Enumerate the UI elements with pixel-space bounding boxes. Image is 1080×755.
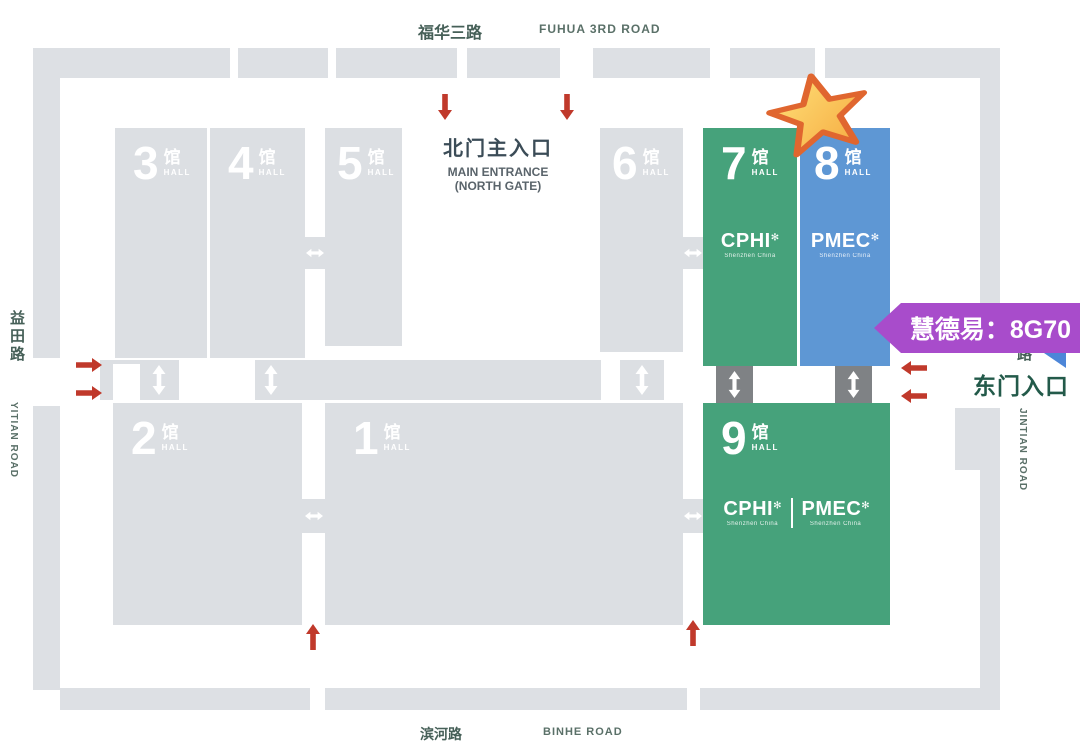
road-label-binhe-en: BINHE ROAD xyxy=(543,726,623,738)
double-arrow-horizontal-icon xyxy=(684,248,702,258)
hall-en-suffix: HALL xyxy=(164,168,191,177)
hall-number: 5 xyxy=(337,144,363,183)
passage-box-dark xyxy=(716,366,753,403)
hall-9-block: 9 馆HALL CPHI✻ Shenzhen China PMEC✻ Shenz… xyxy=(703,403,890,625)
hall-number: 3 xyxy=(133,144,159,183)
road-label-binhe-cn: 滨河路 xyxy=(420,724,462,744)
passage-box-dark xyxy=(835,366,872,403)
hall-5-block: 5 馆HALL xyxy=(325,128,402,346)
hall-number: 4 xyxy=(228,144,254,183)
logo-divider xyxy=(791,498,793,528)
hall-2-label: 2 馆HALL xyxy=(113,403,302,458)
entrance-arrow-left-icon xyxy=(901,361,927,375)
hall-3-label: 3 馆HALL xyxy=(115,128,207,183)
hall-cn-suffix: 馆 xyxy=(752,424,779,441)
double-arrow-vertical-icon xyxy=(728,371,741,398)
double-arrow-vertical-icon xyxy=(635,365,649,395)
corridor-gap xyxy=(179,360,255,400)
road-label-yitian-en: YITIAN ROAD xyxy=(8,402,19,478)
cphi-wordmark: CPHI xyxy=(721,230,771,252)
road-label-jintian-en: JINTIAN ROAD xyxy=(1017,408,1028,491)
outer-wall-segment xyxy=(700,688,1000,710)
double-arrow-horizontal-icon xyxy=(306,248,324,258)
entrance-arrow-down-icon xyxy=(560,94,574,120)
double-arrow-vertical-icon xyxy=(264,365,278,395)
outer-wall-segment xyxy=(33,48,230,78)
entrance-arrow-down-icon xyxy=(438,94,452,120)
outer-wall-segment xyxy=(33,406,60,690)
outer-wall-segment xyxy=(60,688,310,710)
hall-number: 2 xyxy=(131,419,157,458)
pmec-subtitle: Shenzhen China xyxy=(800,253,890,259)
entrance-arrow-up-icon xyxy=(686,620,700,646)
double-arrow-horizontal-icon xyxy=(684,511,702,521)
hall-cn-suffix: 馆 xyxy=(643,149,670,166)
hall-1-label: 1 馆HALL xyxy=(325,403,683,458)
hall-en-suffix: HALL xyxy=(384,443,411,452)
road-label-fuhua-en: FUHUA 3RD ROAD xyxy=(539,22,661,36)
hall-cn-suffix: 馆 xyxy=(162,424,189,441)
north-entrance-en-line2: (NORTH GATE) xyxy=(408,179,588,193)
starburst-icon: ✻ xyxy=(773,501,781,512)
hall-6-block: 6 馆HALL xyxy=(600,128,683,352)
hall-3-block: 3 馆HALL xyxy=(115,128,207,358)
pmec-subtitle: Shenzhen China xyxy=(802,521,870,527)
entrance-arrow-right-icon xyxy=(76,386,102,400)
ribbon-fold-icon xyxy=(1044,353,1066,368)
hall-6-label: 6 馆HALL xyxy=(600,128,683,183)
starburst-icon: ✻ xyxy=(871,233,879,244)
hall-5-label: 5 馆HALL xyxy=(325,128,402,183)
hall-number: 1 xyxy=(353,419,379,458)
hall-en-suffix: HALL xyxy=(162,443,189,452)
east-entrance-label: 东门入口 xyxy=(973,367,1069,401)
hall-en-suffix: HALL xyxy=(752,443,779,452)
hall-9-label: 9 馆HALL xyxy=(703,403,890,458)
corridor-gap xyxy=(113,364,140,400)
hall-4-label: 4 馆HALL xyxy=(210,128,305,183)
north-entrance-label: 北门主入口 MAIN ENTRANCE (NORTH GATE) xyxy=(408,132,588,194)
hall-en-suffix: HALL xyxy=(259,168,286,177)
road-label-yitian-cn: 益田路 xyxy=(6,310,27,364)
outer-wall-segment xyxy=(336,48,457,78)
booth-callout-arrow xyxy=(874,303,901,353)
north-entrance-en-line1: MAIN ENTRANCE xyxy=(408,165,588,179)
outer-wall-segment xyxy=(467,48,560,78)
hall-2-block: 2 馆HALL xyxy=(113,403,302,625)
outer-wall-segment xyxy=(955,408,1000,470)
hall-number: 9 xyxy=(721,419,747,458)
pmec-wordmark: PMEC xyxy=(802,498,862,520)
hall-cn-suffix: 馆 xyxy=(259,149,286,166)
hall-en-suffix: HALL xyxy=(845,168,872,177)
cphi-pmec-logo: CPHI✻ Shenzhen China PMEC✻ Shenzhen Chin… xyxy=(703,498,890,528)
entrance-arrow-right-icon xyxy=(76,358,102,372)
hall-cn-suffix: 馆 xyxy=(368,149,395,166)
double-arrow-vertical-icon xyxy=(152,365,166,395)
booth-callout: 慧德易：8G70 xyxy=(901,303,1080,353)
cphi-logo: CPHI✻ Shenzhen China xyxy=(703,231,797,259)
double-arrow-horizontal-icon xyxy=(305,511,323,521)
cphi-subtitle: Shenzhen China xyxy=(703,253,797,259)
outer-wall-segment xyxy=(33,48,60,358)
north-entrance-cn: 北门主入口 xyxy=(408,132,588,161)
outer-wall-segment xyxy=(325,688,687,710)
passage-box xyxy=(305,237,325,269)
entrance-arrow-up-icon xyxy=(306,624,320,650)
corridor-gap xyxy=(601,360,620,400)
starburst-icon: ✻ xyxy=(771,233,779,244)
hall-number: 6 xyxy=(612,144,638,183)
hall-en-suffix: HALL xyxy=(752,168,779,177)
double-arrow-vertical-icon xyxy=(847,371,860,398)
pmec-logo: PMEC✻ Shenzhen China xyxy=(800,231,890,259)
hall-en-suffix: HALL xyxy=(368,168,395,177)
hall-cn-suffix: 馆 xyxy=(164,149,191,166)
pmec-wordmark: PMEC xyxy=(811,230,871,252)
corridor-gap xyxy=(664,360,683,400)
passage-box xyxy=(302,499,325,533)
starburst-icon: ✻ xyxy=(861,501,869,512)
outer-wall-segment xyxy=(593,48,710,78)
road-label-fuhua-cn: 福华三路 xyxy=(418,19,482,43)
hall-number: 7 xyxy=(721,144,747,183)
cphi-wordmark: CPHI xyxy=(723,498,773,520)
hall-en-suffix: HALL xyxy=(643,168,670,177)
passage-box xyxy=(683,499,703,533)
hall-1-block: 1 馆HALL xyxy=(325,403,683,625)
passage-box xyxy=(683,237,703,269)
hall-cn-suffix: 馆 xyxy=(384,424,411,441)
booth-callout-text: 慧德易：8G70 xyxy=(910,310,1071,346)
exhibition-map: 福华三路 FUHUA 3RD ROAD 滨河路 BINHE ROAD 益田路 Y… xyxy=(0,0,1080,755)
outer-wall-segment xyxy=(238,48,328,78)
hall-4-block: 4 馆HALL xyxy=(210,128,305,358)
entrance-arrow-left-icon xyxy=(901,389,927,403)
cphi-subtitle: Shenzhen China xyxy=(723,521,781,527)
